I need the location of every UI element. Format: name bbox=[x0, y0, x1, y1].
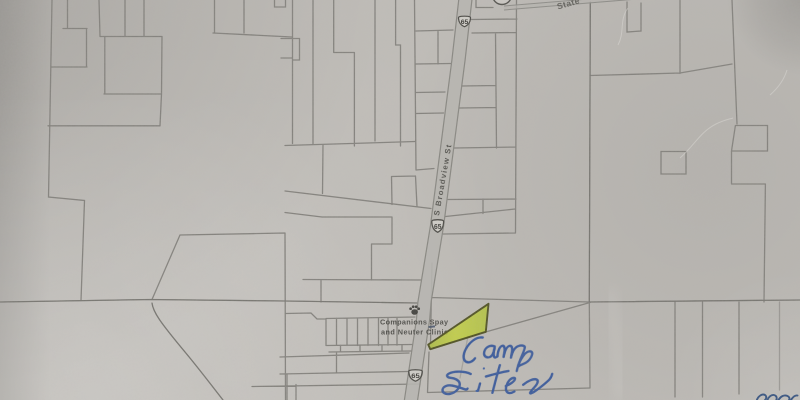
svg-text:65: 65 bbox=[411, 371, 419, 379]
svg-text:65: 65 bbox=[461, 19, 469, 26]
svg-text:Companions Spay: Companions Spay bbox=[380, 318, 449, 327]
svg-text:65: 65 bbox=[434, 222, 441, 230]
svg-text:and Neuter Clinic: and Neuter Clinic bbox=[381, 328, 448, 337]
